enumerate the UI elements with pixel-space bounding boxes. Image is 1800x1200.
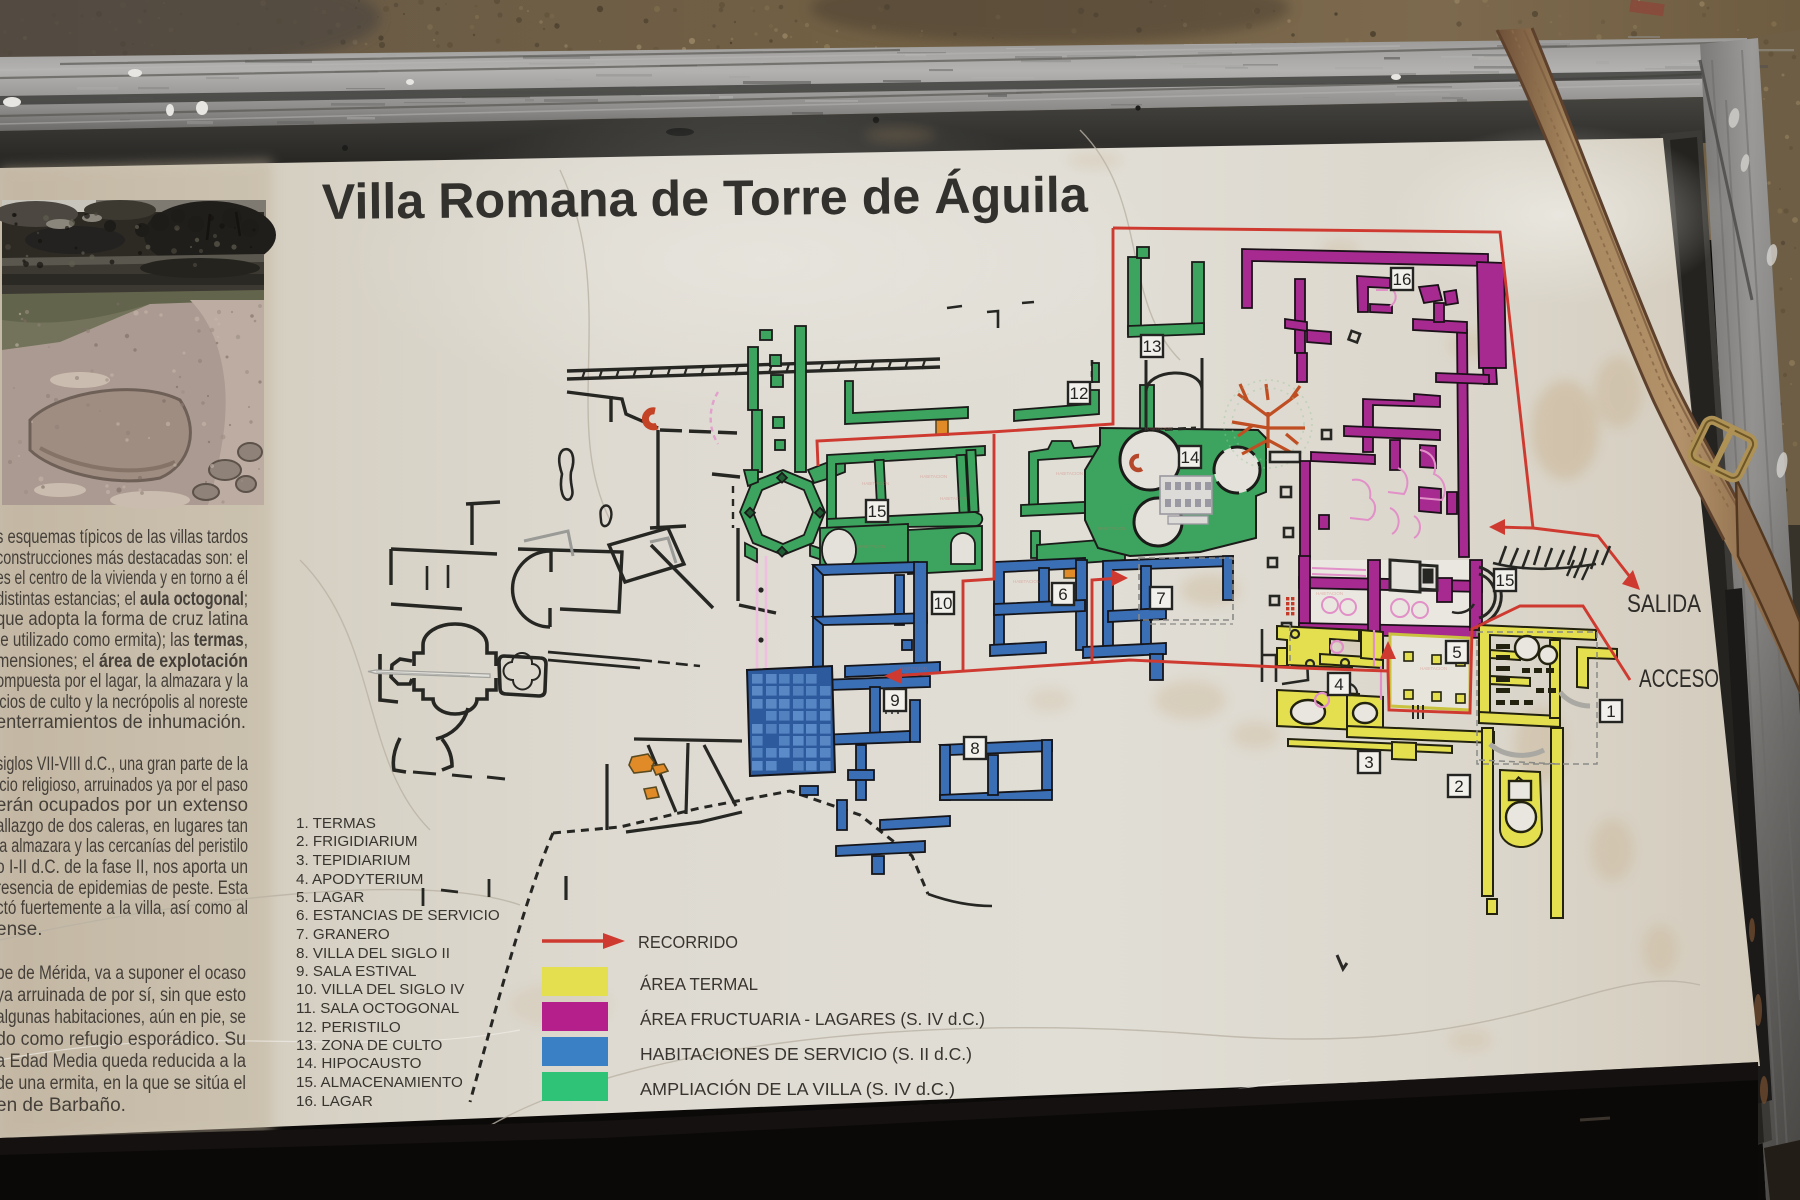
svg-text:ya arruinada de por sí, sin qu: ya arruinada de por sí, sin que esto (0, 985, 246, 1006)
svg-text:RECORRIDO: RECORRIDO (638, 932, 738, 952)
svg-text:a Edad Media queda reducida a: a Edad Media queda reducida a la (0, 1051, 246, 1072)
svg-text:5. LAGAR: 5. LAGAR (296, 889, 364, 906)
svg-text:HABITACION: HABITACION (920, 474, 947, 479)
svg-text:7. GRANERO: 7. GRANERO (296, 926, 390, 943)
svg-text:algunas habitaciones, aún en p: algunas habitaciones, aún en pie, se (0, 1007, 246, 1028)
svg-text:12. PERISTILO: 12. PERISTILO (296, 1019, 401, 1036)
svg-text:8. VILLA DEL SIGLO II: 8. VILLA DEL SIGLO II (296, 945, 450, 962)
svg-text:allazgo de dos caleras, en lug: allazgo de dos caleras, en lugares tan (0, 816, 248, 837)
svg-text:HABITACION: HABITACION (862, 481, 889, 486)
svg-text:7: 7 (1156, 589, 1165, 608)
svg-text:9. SALA ESTIVAL: 9. SALA ESTIVAL (296, 963, 416, 980)
svg-text:icios de culto y la necrópolis: icios de culto y la necrópolis al norest… (0, 692, 248, 713)
svg-text:4. APODYTERIUM: 4. APODYTERIUM (296, 871, 423, 888)
svg-text:13. ZONA DE CULTO: 13. ZONA DE CULTO (296, 1037, 442, 1054)
svg-text:15. ALMACENAMIENTO: 15. ALMACENAMIENTO (296, 1074, 463, 1091)
svg-text:HABITACION: HABITACION (858, 544, 885, 549)
svg-text:la almazara y las cercanías de: la almazara y las cercanías del peristil… (0, 836, 248, 857)
svg-text:ACCESO: ACCESO (1639, 665, 1719, 693)
svg-text:1: 1 (1606, 702, 1615, 721)
svg-text:HABITACION: HABITACION (900, 666, 927, 671)
svg-text:HABITACIONES DE SERVICIO (S. I: HABITACIONES DE SERVICIO (S. II d.C.) (640, 1044, 972, 1064)
svg-text:siglos VII-VIII d.C., una gran: siglos VII-VIII d.C., una gran parte de … (0, 754, 248, 775)
svg-text:ense.: ense. (0, 919, 42, 940)
svg-text:15: 15 (1496, 571, 1515, 590)
svg-text:distintas estancias; el aula o: distintas estancias; el aula octogonal; (0, 589, 248, 610)
svg-text:13: 13 (1143, 337, 1162, 356)
svg-text:HABITACION: HABITACION (1056, 471, 1083, 476)
svg-text:8: 8 (970, 739, 979, 758)
svg-text:SALIDA: SALIDA (1627, 590, 1701, 618)
svg-text:ctó fuertemente a la villa, as: ctó fuertemente a la villa, así como al (0, 898, 248, 919)
svg-text:11. SALA OCTOGONAL: 11. SALA OCTOGONAL (296, 1000, 459, 1017)
svg-text:HABITACION: HABITACION (1145, 426, 1172, 431)
svg-text:be de Mérida, va a suponer el: be de Mérida, va a suponer el ocaso (0, 963, 246, 984)
svg-text:14: 14 (1181, 448, 1200, 467)
svg-text:ompuesta por el lagar, la alma: ompuesta por el lagar, la almazara y la (0, 671, 248, 692)
svg-text:16. LAGAR: 16. LAGAR (296, 1093, 373, 1110)
svg-text:ÁREA TERMAL: ÁREA TERMAL (640, 974, 758, 994)
svg-text:que adopta la forma de cruz la: que adopta la forma de cruz latina (0, 609, 248, 630)
svg-text:5: 5 (1452, 643, 1461, 662)
svg-text:HABITACION: HABITACION (940, 496, 967, 501)
svg-text:4: 4 (1334, 675, 1343, 694)
svg-text:te utilizado como ermita); las: te utilizado como ermita); las termas, (0, 630, 248, 651)
svg-text:do como refugio esporádico. S: do como refugio esporádico. Su (0, 1029, 246, 1050)
svg-text:erán ocupados por un exten: erán ocupados por un extenso (0, 795, 248, 816)
svg-text:14. HIPOCAUSTO: 14. HIPOCAUSTO (296, 1055, 422, 1072)
svg-text:12: 12 (1070, 384, 1089, 403)
svg-text:AMPLIACIÓN DE LA VILLA (S. IV: AMPLIACIÓN DE LA VILLA (S. IV d.C.) (640, 1078, 955, 1099)
svg-text:9: 9 (890, 691, 899, 710)
svg-text:o I-II d.C. de la fase II, nos: o I-II d.C. de la fase II, nos aporta un (0, 857, 248, 878)
svg-text:es el centro de la vivienda y: es el centro de la vivienda y en torno a… (0, 568, 248, 589)
svg-text:mensiones; el área de explotac: mensiones; el área de explotación (0, 651, 248, 672)
svg-text:3. TEPIDIARIUM: 3. TEPIDIARIUM (296, 852, 411, 869)
svg-text:en de Barbaño.: en de Barbaño. (0, 1095, 126, 1116)
svg-text:16: 16 (1393, 270, 1412, 289)
svg-text:de una ermita, en la que se si: de una ermita, en la que se sitúa el (0, 1073, 246, 1094)
svg-text:1. TERMAS: 1. TERMAS (296, 815, 376, 832)
svg-text:3: 3 (1364, 753, 1373, 772)
svg-text:s esquemas típicos de las vill: s esquemas típicos de las villas tardos (0, 527, 248, 548)
svg-text:6. ESTANCIAS DE SERVICIO: 6. ESTANCIAS DE SERVICIO (296, 907, 500, 924)
svg-text:construcciones más destacadas: construcciones más destacadas son: el (0, 548, 248, 569)
svg-text:icio religioso, arruinados ya: icio religioso, arruinados ya por el pas… (0, 775, 248, 796)
svg-text:HABITACION: HABITACION (1316, 591, 1343, 596)
svg-text:2: 2 (1454, 777, 1463, 796)
svg-text:2. FRIGIDIARIUM: 2. FRIGIDIARIUM (296, 833, 418, 850)
svg-text:HABITACION: HABITACION (1420, 666, 1447, 671)
svg-text:15: 15 (868, 502, 887, 521)
svg-text:6: 6 (1058, 585, 1067, 604)
svg-text:resencia de epidemias de peste: resencia de epidemias de peste. Esta (0, 878, 248, 899)
svg-text:10: 10 (934, 594, 953, 613)
svg-text:10. VILLA DEL SIGLO IV: 10. VILLA DEL SIGLO IV (296, 981, 465, 998)
svg-text:HABITACION: HABITACION (1013, 579, 1040, 584)
svg-text:HABITACION: HABITACION (1098, 526, 1125, 531)
svg-text:enterramientos de inhumación.: enterramientos de inhumación. (0, 712, 246, 733)
svg-text:Villa Romana de Torre de Águil: Villa Romana de Torre de Águila (322, 167, 1090, 230)
svg-text:ÁREA FRUCTUARIA - LAGARES (S.: ÁREA FRUCTUARIA - LAGARES (S. IV d.C.) (640, 1009, 985, 1029)
